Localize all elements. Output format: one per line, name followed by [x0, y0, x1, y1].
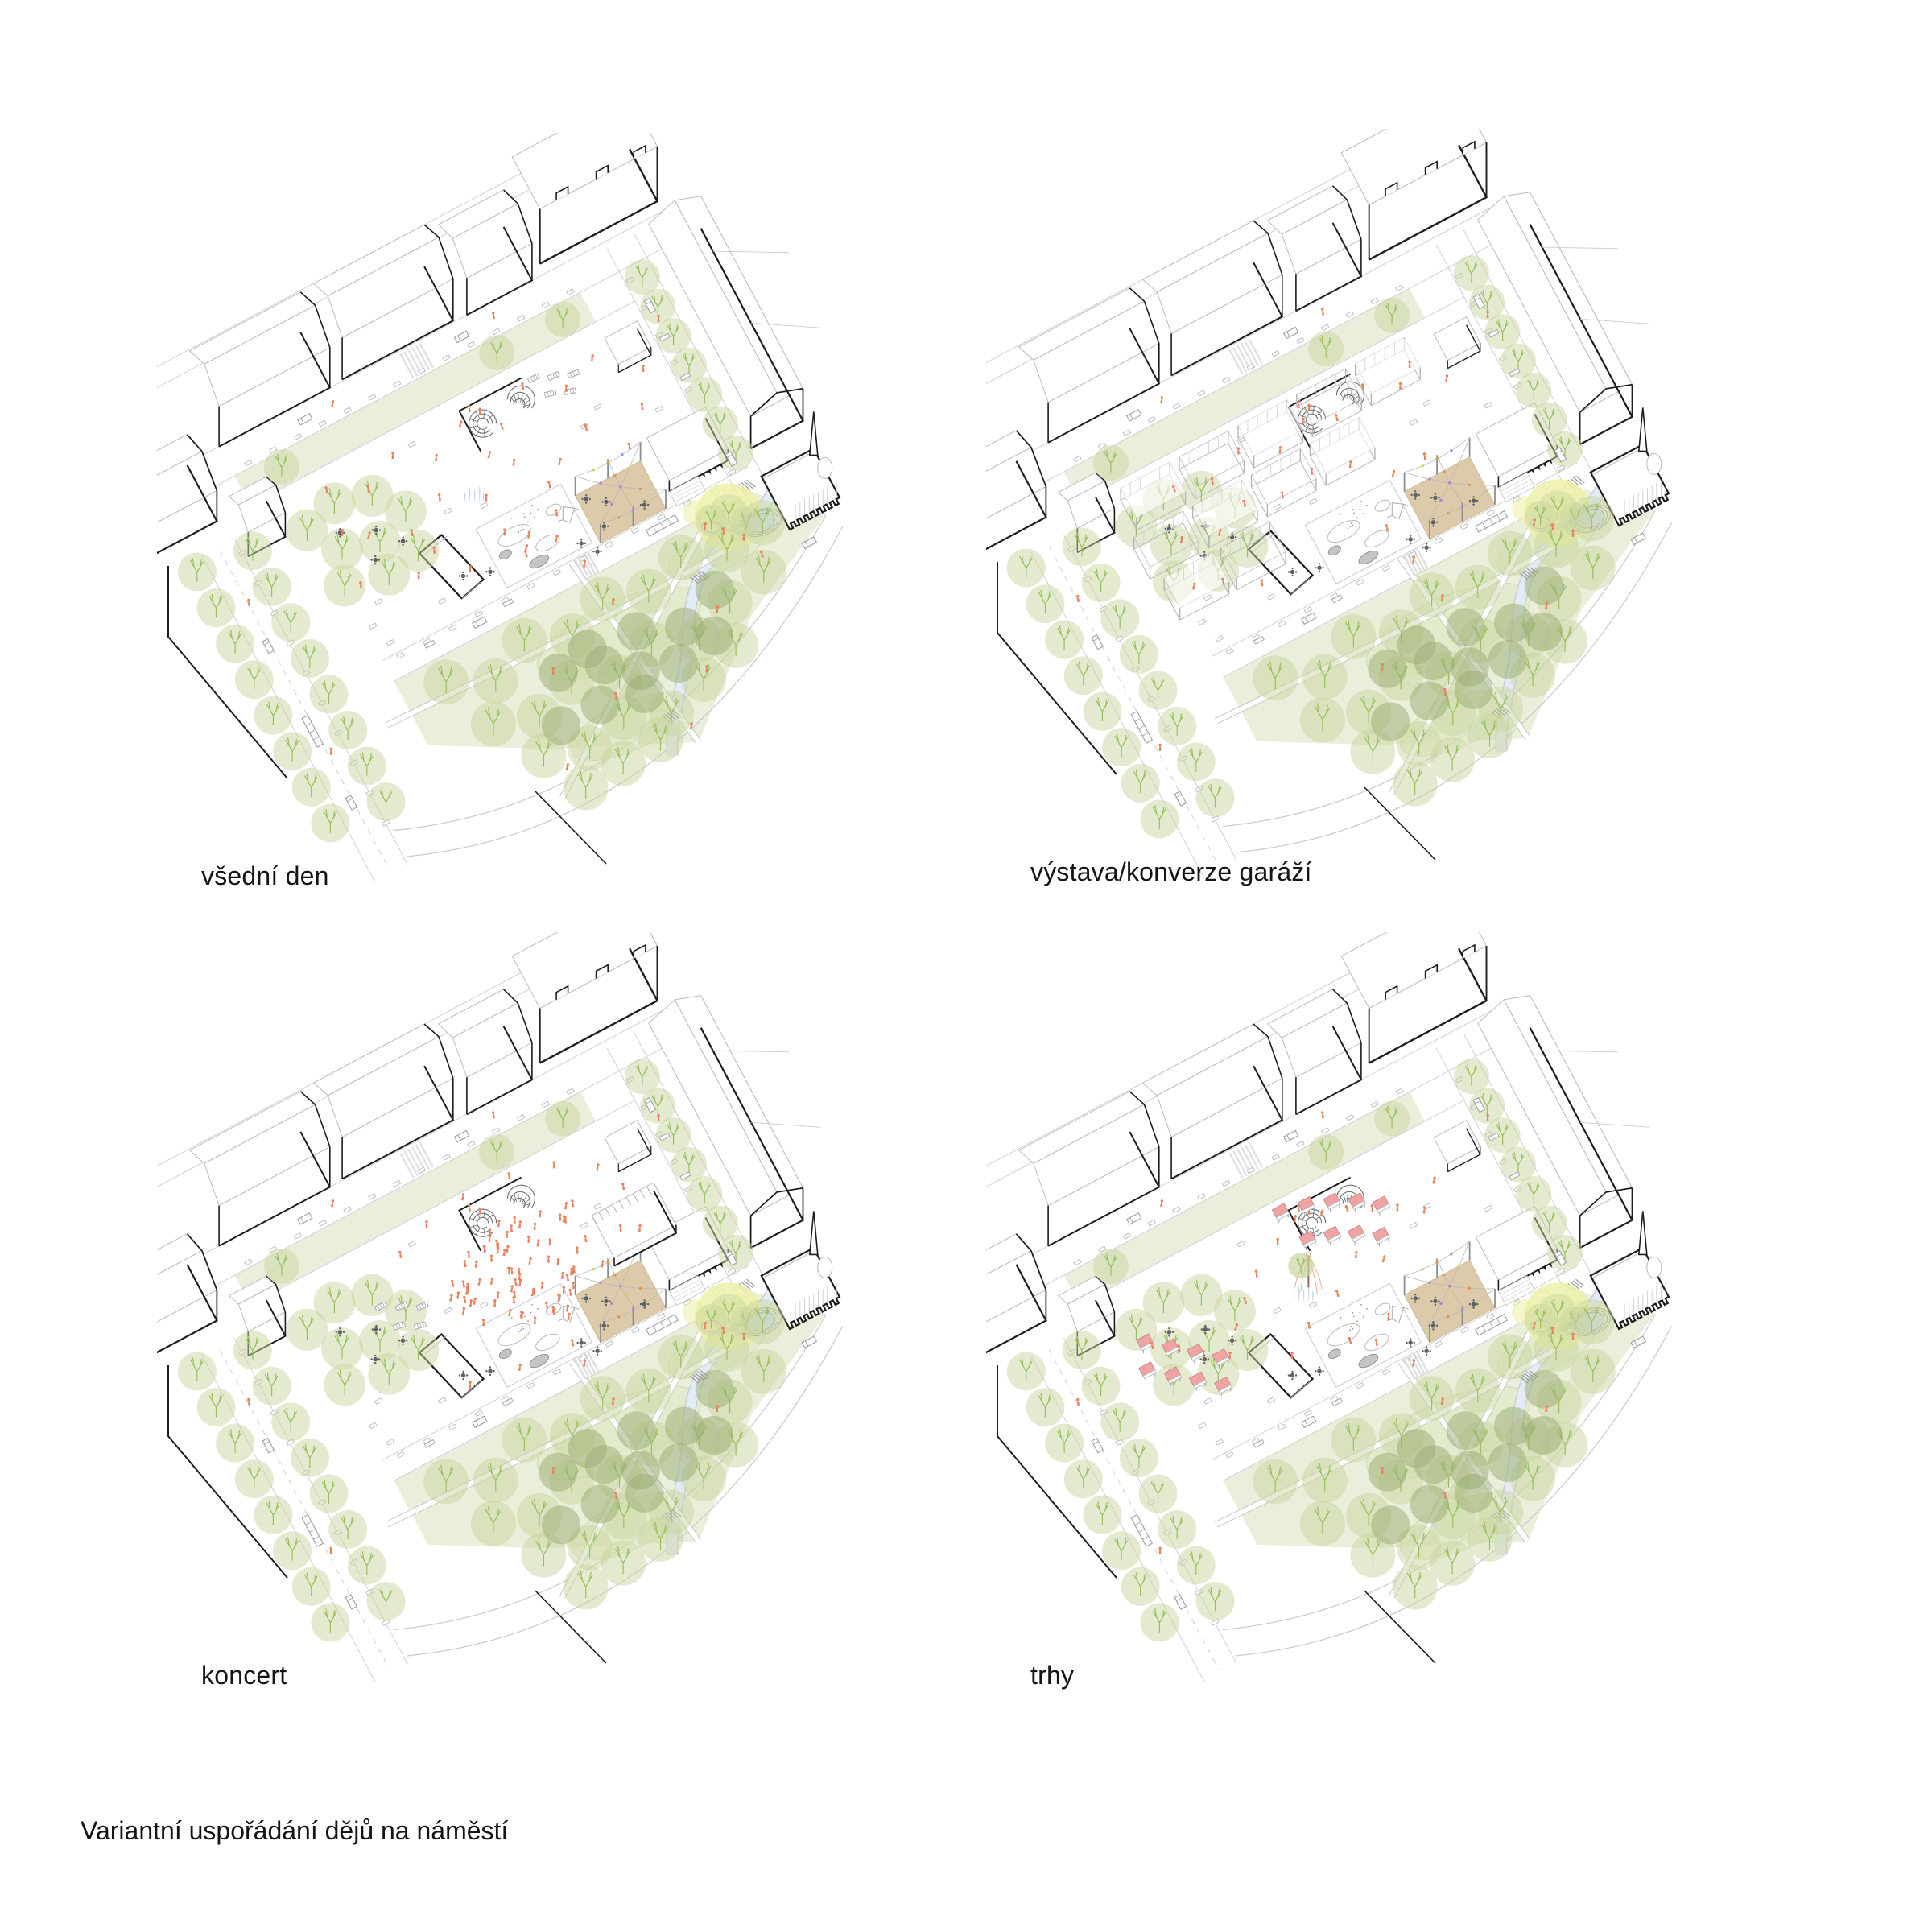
- axon-drawing-trhy: [986, 932, 1819, 1705]
- panel-label-vystava: výstava/konverze garáží: [1030, 857, 1312, 887]
- axon-drawing-vystava: [986, 129, 1819, 902]
- panel-vsedni-den: všední den: [157, 133, 990, 906]
- panel-vystava: výstava/konverze garáží: [986, 129, 1819, 902]
- sheet-caption: Variantní uspořádání dějů na náměstí: [80, 1816, 508, 1846]
- panel-label-koncert: koncert: [201, 1661, 287, 1690]
- panel-label-vsedni-den: všední den: [201, 861, 329, 891]
- panel-koncert: koncert: [157, 932, 990, 1705]
- panel-label-trhy: trhy: [1030, 1661, 1074, 1690]
- panel-trhy: trhy: [986, 932, 1819, 1705]
- axon-drawing-koncert: [157, 932, 990, 1705]
- axon-drawing-vsedni-den: [157, 133, 990, 906]
